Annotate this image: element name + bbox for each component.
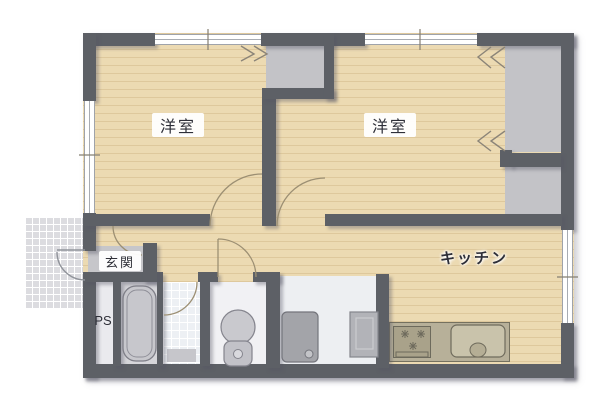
kitchen-sink xyxy=(451,325,505,357)
fixtures-overlay xyxy=(0,0,600,411)
room-label-kitchen: キッチン xyxy=(428,246,520,268)
bedroom-right-label-text: 洋室 xyxy=(372,113,408,137)
stove-burners-icon xyxy=(396,330,428,357)
room-label-entrance: 玄関 xyxy=(99,251,141,271)
washing-machine xyxy=(282,312,318,362)
bedroom-left-label-text: 洋室 xyxy=(160,113,196,137)
room-label-pipe-space: PS xyxy=(91,312,115,328)
bedroom-left-door-arc xyxy=(210,174,262,226)
room-label-bedroom-left: 洋室 xyxy=(152,113,204,137)
pipe-space-label-text: PS xyxy=(94,313,111,328)
toilet xyxy=(221,310,255,366)
bathtub xyxy=(123,286,156,361)
washroom-door-arc xyxy=(164,282,197,315)
toilet-door-arc xyxy=(218,239,256,277)
closet-right-bifold-bottom-icon xyxy=(478,131,505,151)
refrigerator-space xyxy=(350,312,378,357)
floor-plan: 洋室 洋室 キッチン 玄関 PS xyxy=(0,0,600,411)
entrance-label-text: 玄関 xyxy=(105,252,135,271)
kitchen-label-text: キッチン xyxy=(440,247,508,268)
closet-center-bifold-icon xyxy=(241,46,267,61)
closet-right-bifold-top-icon xyxy=(478,47,505,68)
room-label-bedroom-right: 洋室 xyxy=(364,113,416,137)
entrance-door xyxy=(57,250,85,280)
bedroom-right-door-arc xyxy=(277,178,325,226)
